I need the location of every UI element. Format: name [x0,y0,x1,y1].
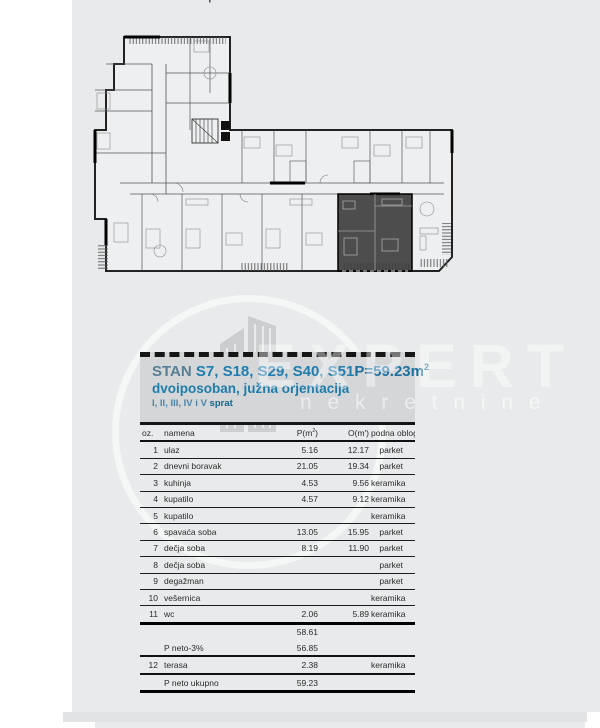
table-row: 8dečja sobaparket [140,557,415,573]
cell-name: kuhinja [158,478,266,488]
cell-oz: 1 [140,445,158,455]
cell-oz: 10 [140,593,158,603]
table-row: 3kuhinja4.539.56keramika [140,475,415,491]
cell-o: 5.89 [320,609,371,619]
header-floor: podna obloga [371,428,415,438]
table-row: 4kupatilo4.579.12keramika [140,492,415,508]
cell-floor: parket [371,543,415,553]
cell-p: 56.85 [266,643,320,653]
cell-name: dnevni boravak [158,461,266,471]
cell-floor: parket [371,576,415,586]
cell-p: 21.05 [266,461,320,471]
cell-p: 4.53 [266,478,320,488]
highlighted-unit [338,194,412,271]
table-row: 6spavaća soba13.0515.95parket [140,524,415,540]
floor-plan-image [90,33,475,281]
cell-p: 13.05 [266,527,320,537]
table-row: 1ulaz5.1612.17parket [140,442,415,458]
cell-o: 11.90 [320,543,371,553]
header-oz: oz. [140,428,158,438]
table-row: 11wc2.065.89keramika [140,606,415,624]
page-gap-band [63,712,587,722]
cell-floor: parket [371,560,415,570]
cell-name: spavaća soba [158,527,266,537]
document-page: I sprat S.. S.. [72,0,600,712]
cell-p: 2.06 [266,609,320,619]
clipped-page-caption: I sprat S.. S.. [190,0,296,3]
cell-o: 15.95 [320,527,371,537]
header-namena: namena [158,428,266,438]
cell-oz: 7 [140,543,158,553]
cell-name: dečja soba [158,560,266,570]
cell-floor: keramika [371,511,415,521]
table-row: 10vešernicakeramika [140,590,415,606]
cell-name: kupatilo [158,494,266,504]
table-row: 5kupatilokeramika [140,508,415,524]
cell-oz: 12 [140,660,158,670]
cell-name: terasa [158,660,266,670]
cell-name: kupatilo [158,511,266,521]
cell-name: vešernica [158,593,266,603]
cell-o: 9.12 [320,494,371,504]
table-row: 9degažmanparket [140,574,415,590]
cell-name: dečja soba [158,543,266,553]
table-row: 7dečja soba8.1911.90parket [140,541,415,557]
cell-floor: parket [371,461,415,471]
cell-name: wc [158,609,266,619]
neto-row: P neto-3%56.85 [140,640,415,657]
stan-label: STAN [152,363,196,380]
cell-oz: 5 [140,511,158,521]
header-p: P(m2) [266,428,320,438]
table-header-row: oz. namena P(m2) O(m') podna obloga [140,425,415,442]
watermark-subbrand-text: n e k r e t n i n e [300,391,546,415]
cell-floor: keramika [371,494,415,504]
cell-floor: keramika [371,660,415,670]
cell-floor: keramika [371,593,415,603]
table-row: 2dnevni boravak21.0519.34parket [140,459,415,475]
cell-name: P neto-3% [158,643,266,653]
cell-name: degažman [158,576,266,586]
cell-p: 4.57 [266,494,320,504]
screen: { "page": { "top_caption": "I sprat S.. … [0,0,600,728]
cell-floor: parket [371,527,415,537]
cell-oz: 2 [140,461,158,471]
cell-o: 9.56 [320,478,371,488]
cell-oz: 9 [140,576,158,586]
cell-name: P neto ukupno [158,678,266,688]
cell-p: 8.19 [266,543,320,553]
next-page-fragment [95,722,585,728]
cell-floor: parket [371,445,415,455]
cell-oz: 4 [140,494,158,504]
cell-floor: keramika [371,609,415,619]
header-o: O(m') [320,428,371,438]
total-row: P neto ukupno59.23 [140,675,415,693]
cell-oz: 3 [140,478,158,488]
cell-oz: 6 [140,527,158,537]
cell-o: 12.17 [320,445,371,455]
cell-p: 5.16 [266,445,320,455]
sum-row: 58.61 [140,625,415,640]
room-table: oz. namena P(m2) O(m') podna obloga 1ula… [140,425,415,693]
terasa-row: 12terasa2.38keramika [140,657,415,674]
cell-oz: 8 [140,560,158,570]
cell-oz: 11 [140,609,158,619]
cell-p: 59.23 [266,678,320,688]
cell-o: 19.34 [320,461,371,471]
cell-name: ulaz [158,445,266,455]
cell-floor: keramika [371,478,415,488]
cell-p: 58.61 [266,627,320,637]
cell-p: 2.38 [266,660,320,670]
